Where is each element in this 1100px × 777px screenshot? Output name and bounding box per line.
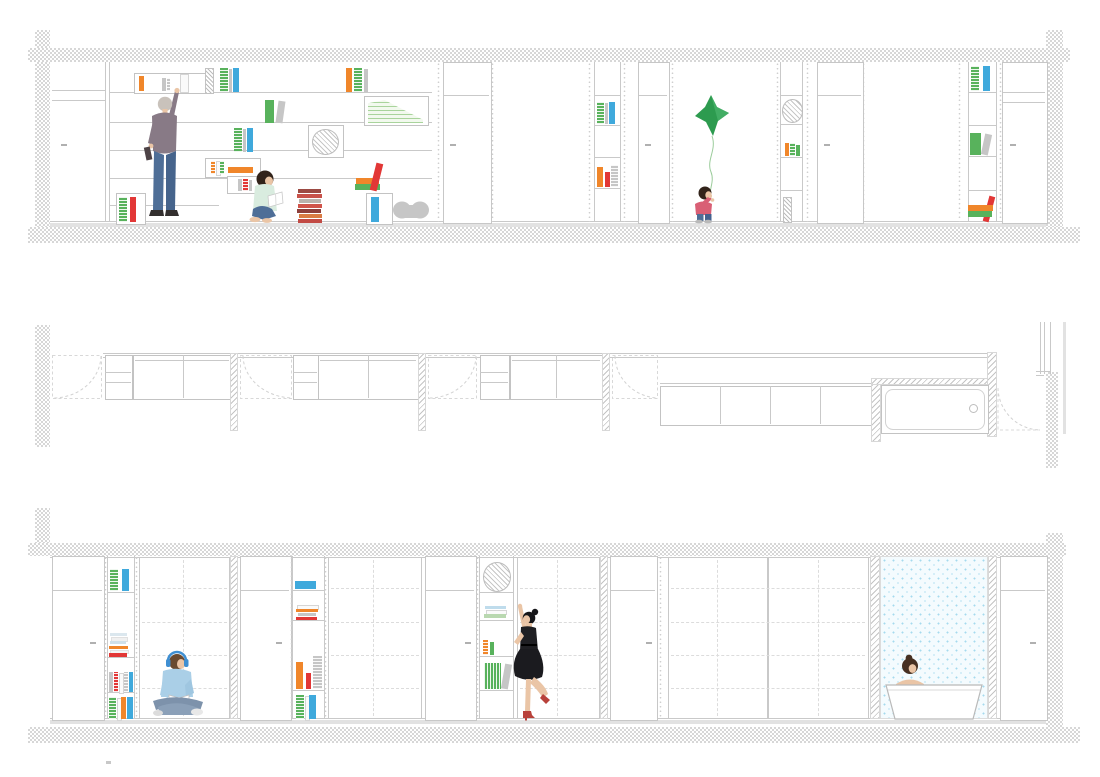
plan-shelf-line xyxy=(293,382,317,383)
plan-shelf-line xyxy=(105,372,131,373)
plan-wall-edge xyxy=(1050,322,1051,374)
book-spine xyxy=(243,129,246,152)
door-swing-plan xyxy=(428,355,477,399)
door-top-line xyxy=(241,590,289,591)
partition-wall xyxy=(230,556,238,719)
shelf-line xyxy=(968,125,996,126)
book-stack-bar xyxy=(299,199,321,203)
ceiling-slab xyxy=(28,48,1070,62)
book-stack-bar xyxy=(298,613,316,616)
book-spine xyxy=(234,128,242,152)
door-top-line xyxy=(1001,590,1045,591)
book-stack-bar xyxy=(109,646,128,649)
shelf-line xyxy=(292,620,324,621)
book-spine xyxy=(109,697,116,719)
floor-band xyxy=(50,223,1046,227)
panel-edge xyxy=(105,62,106,222)
shelf-line xyxy=(780,124,802,125)
book-stack-bar xyxy=(110,641,126,644)
door-top-line xyxy=(426,590,474,591)
door-top-line xyxy=(53,590,102,591)
column-edge xyxy=(594,62,595,222)
book-spine-leaning xyxy=(981,134,992,156)
floor-slab xyxy=(28,727,1080,743)
plan-counter-line xyxy=(660,383,873,384)
wardrobe-door xyxy=(425,556,477,721)
book-spine xyxy=(483,640,488,655)
wall-right xyxy=(1046,533,1063,739)
book-stack-bar xyxy=(298,219,322,223)
column-edge xyxy=(802,62,803,222)
shelf-line xyxy=(594,125,620,126)
book-spine xyxy=(296,695,304,719)
shelf-line xyxy=(780,190,802,191)
book-spine xyxy=(597,167,603,187)
door-swing-plan xyxy=(52,355,102,399)
architectural-drawing-canvas xyxy=(0,0,1100,777)
door-handle-mark xyxy=(90,642,96,644)
plan-window xyxy=(510,355,604,400)
book-stack-bar xyxy=(299,214,322,218)
shelf-line xyxy=(292,590,324,591)
door-swing-plan xyxy=(240,355,292,399)
plan-shelf-line xyxy=(105,382,131,383)
panel-track-dotted xyxy=(806,62,809,222)
shelf-line xyxy=(968,92,996,93)
plan-partition-wall xyxy=(602,353,610,431)
plan-cabinet-divider xyxy=(820,386,821,424)
wardrobe-door xyxy=(52,556,105,721)
toddler-with-balloon-figure xyxy=(684,92,738,223)
book-spine xyxy=(609,102,615,124)
plan-cabinet-divider xyxy=(720,386,721,424)
partition-wall xyxy=(600,556,608,719)
panel-track-dotted xyxy=(623,62,626,222)
plan-shelf-line xyxy=(480,382,508,383)
book-spine xyxy=(110,569,118,591)
panel-edge xyxy=(421,557,422,718)
book-spine xyxy=(971,66,979,91)
book-spine xyxy=(605,172,610,187)
door-swing-plan xyxy=(612,355,658,399)
book-spine xyxy=(796,145,800,156)
book-spine xyxy=(109,672,113,692)
book-spine xyxy=(611,165,618,187)
plan-partition-wall xyxy=(230,353,238,431)
book-spine-hatched xyxy=(783,197,792,223)
door-top-line xyxy=(611,590,655,591)
panel-edge xyxy=(868,557,869,718)
bath-wall xyxy=(870,556,880,719)
panel-guide-dashed xyxy=(818,560,819,716)
book-spine xyxy=(785,143,789,156)
plan-partition-wall xyxy=(418,353,426,431)
plan-cabinet-cell xyxy=(293,355,319,400)
plan-window-line xyxy=(135,360,229,361)
book-spine xyxy=(122,569,129,591)
book-stack-bar xyxy=(297,209,321,213)
closet-door xyxy=(443,62,492,224)
book-spine-leaning xyxy=(370,163,384,192)
plan-wall-edge xyxy=(1040,322,1041,374)
book-spine xyxy=(124,672,128,692)
door-handle-mark xyxy=(645,144,651,146)
shelf-line xyxy=(780,157,802,158)
book-spine xyxy=(129,672,133,692)
book-spine xyxy=(371,197,379,222)
panel-track-dotted xyxy=(324,556,327,719)
floor-slab xyxy=(28,227,1080,243)
bath-wall xyxy=(988,556,997,719)
book-spine xyxy=(983,66,990,91)
shelf-line xyxy=(780,95,802,96)
book-spine xyxy=(220,68,228,92)
book-spine xyxy=(130,197,136,222)
elderly-man-reaching-figure xyxy=(139,85,189,223)
shelf-line xyxy=(107,657,135,658)
book-spine xyxy=(233,68,239,92)
book-spine-leaning xyxy=(276,101,286,124)
door-top-line xyxy=(818,95,861,96)
shelf-line xyxy=(968,190,996,191)
door-handle-mark xyxy=(646,642,652,644)
closet-door xyxy=(638,62,670,224)
column-edge xyxy=(968,62,969,222)
book-spine xyxy=(306,673,311,689)
panel-guide-dashed xyxy=(331,588,419,589)
plan-wall-tick xyxy=(1036,375,1044,376)
panel-guide-dashed xyxy=(671,688,865,689)
panel-track-dotted xyxy=(588,62,591,222)
book-spine xyxy=(597,102,604,124)
column-edge xyxy=(107,556,108,719)
ceiling-slab xyxy=(28,543,1066,556)
door-handle-mark xyxy=(465,642,471,644)
column-edge xyxy=(292,556,293,719)
shelf-line xyxy=(594,95,620,96)
book-spine xyxy=(313,656,322,689)
door-top-line xyxy=(1003,92,1045,93)
book-stack-bar xyxy=(295,581,316,589)
door-handle-mark xyxy=(276,642,282,644)
plan-window-mullion xyxy=(368,355,369,398)
book-spine xyxy=(211,161,215,174)
book-stack-bar xyxy=(297,194,322,198)
decor-circle-hatched xyxy=(312,129,339,155)
panel-edge xyxy=(768,557,769,718)
panel-edge xyxy=(668,557,669,718)
panel-track-dotted xyxy=(659,556,662,719)
bath-wall-plan xyxy=(871,380,881,442)
book-spine xyxy=(970,133,981,155)
wall-left-plan xyxy=(35,325,50,447)
pet-bed xyxy=(393,200,429,219)
panel-guide-dashed xyxy=(331,688,419,689)
book-spine xyxy=(114,672,118,692)
book-spine xyxy=(605,103,608,124)
shelf-line xyxy=(968,156,996,157)
column-edge xyxy=(780,62,781,222)
book-stack-bar xyxy=(298,204,322,208)
panel-guide-dashed xyxy=(520,588,596,589)
bathroom-door xyxy=(1000,556,1048,721)
book-spine xyxy=(790,143,795,156)
panel-guide-dashed xyxy=(331,655,419,656)
man-headphones-reading-figure xyxy=(146,649,212,721)
door-handle-mark xyxy=(824,144,830,146)
book-spine xyxy=(354,68,362,92)
panel-track-dotted xyxy=(776,62,779,222)
shelf-line xyxy=(52,90,105,91)
book-spine xyxy=(296,662,303,689)
book-stack-bar xyxy=(109,653,127,657)
panel-edge xyxy=(328,557,329,718)
book-stack-bar xyxy=(296,617,317,620)
panel-track-dotted xyxy=(671,62,674,222)
door-handle-mark xyxy=(450,144,456,146)
book-spine xyxy=(127,697,133,719)
plan-shelf-line xyxy=(480,372,508,373)
panel-guide-dashed xyxy=(671,588,865,589)
book-spine xyxy=(364,69,368,92)
panel-guide-dashed xyxy=(671,655,865,656)
wardrobe-door xyxy=(610,556,658,721)
plan-cabinet-run xyxy=(660,386,875,426)
door-handle-mark xyxy=(1030,642,1036,644)
panel-guide-dashed xyxy=(717,560,718,716)
book-spine xyxy=(247,128,253,152)
bath-wall-plan xyxy=(871,378,997,385)
plan-wall-edge xyxy=(1063,322,1066,434)
wall-clock-hatched xyxy=(483,562,511,592)
shelf-line xyxy=(292,690,324,691)
closet-door xyxy=(817,62,864,224)
book-spine-hatched xyxy=(205,68,214,94)
door-swing-plan xyxy=(997,387,1041,431)
book-stack-bar xyxy=(296,609,318,612)
column-edge xyxy=(620,62,621,222)
panel-guide-dashed xyxy=(373,560,374,716)
panel-guide-dashed xyxy=(142,588,227,589)
plan-window xyxy=(318,355,420,400)
plan-shelf-line xyxy=(293,372,317,373)
plan-window-mullion xyxy=(556,355,557,398)
panel-guide-dashed xyxy=(142,622,227,623)
panel-guide-dashed xyxy=(671,622,865,623)
shelf-line xyxy=(594,188,620,189)
panel-track-dotted xyxy=(958,62,961,222)
book-spine xyxy=(220,161,224,174)
panel-guide-dashed xyxy=(331,622,419,623)
book-spine xyxy=(121,697,126,719)
column-edge xyxy=(479,556,480,719)
plan-window-mullion xyxy=(183,355,184,398)
plan-cabinet-divider xyxy=(770,386,771,424)
panel-track-dotted xyxy=(135,556,138,719)
door-handle-mark xyxy=(1010,144,1016,146)
floor-line xyxy=(50,221,1046,222)
door-top-line xyxy=(639,95,667,96)
column-edge xyxy=(996,62,997,222)
book-spine xyxy=(119,197,127,222)
floor-book-stack xyxy=(297,189,322,223)
shelf-line xyxy=(52,100,105,101)
shelf-line xyxy=(107,592,135,593)
shelf-line xyxy=(479,592,513,593)
wardrobe-door xyxy=(240,556,292,721)
book-stack-bar xyxy=(298,189,321,193)
door-top-line xyxy=(444,95,489,96)
bathtub-elevation xyxy=(884,684,984,720)
book-spine xyxy=(229,69,232,92)
book-spine xyxy=(309,695,316,719)
shelf-box xyxy=(308,125,344,158)
door-handle-mark xyxy=(61,144,67,146)
panel-edge xyxy=(139,557,140,718)
panel-edge xyxy=(109,62,110,222)
wall-right-plan xyxy=(1046,372,1058,468)
plan-wall-edge xyxy=(1044,322,1045,374)
book-stack-bar xyxy=(110,633,127,636)
book-stack-bar xyxy=(968,211,992,217)
scale-annotation-mark xyxy=(106,761,111,764)
closet-door xyxy=(1002,62,1048,224)
woman-black-dress-figure xyxy=(492,597,558,721)
shelf-line xyxy=(594,157,620,158)
plan-cabinet-cell xyxy=(480,355,510,400)
decor-circle-hatched xyxy=(782,99,803,123)
door-top-line xyxy=(1003,102,1045,103)
bathtub-drain xyxy=(969,404,978,413)
wall-left-stub xyxy=(35,508,50,548)
panel-track-dotted xyxy=(437,62,440,222)
plan-wall-tick xyxy=(1036,371,1050,372)
boy-reading-figure xyxy=(240,169,300,223)
plan-cabinet-cell xyxy=(105,355,133,400)
book-spine xyxy=(265,100,274,123)
book-spine xyxy=(346,68,352,92)
